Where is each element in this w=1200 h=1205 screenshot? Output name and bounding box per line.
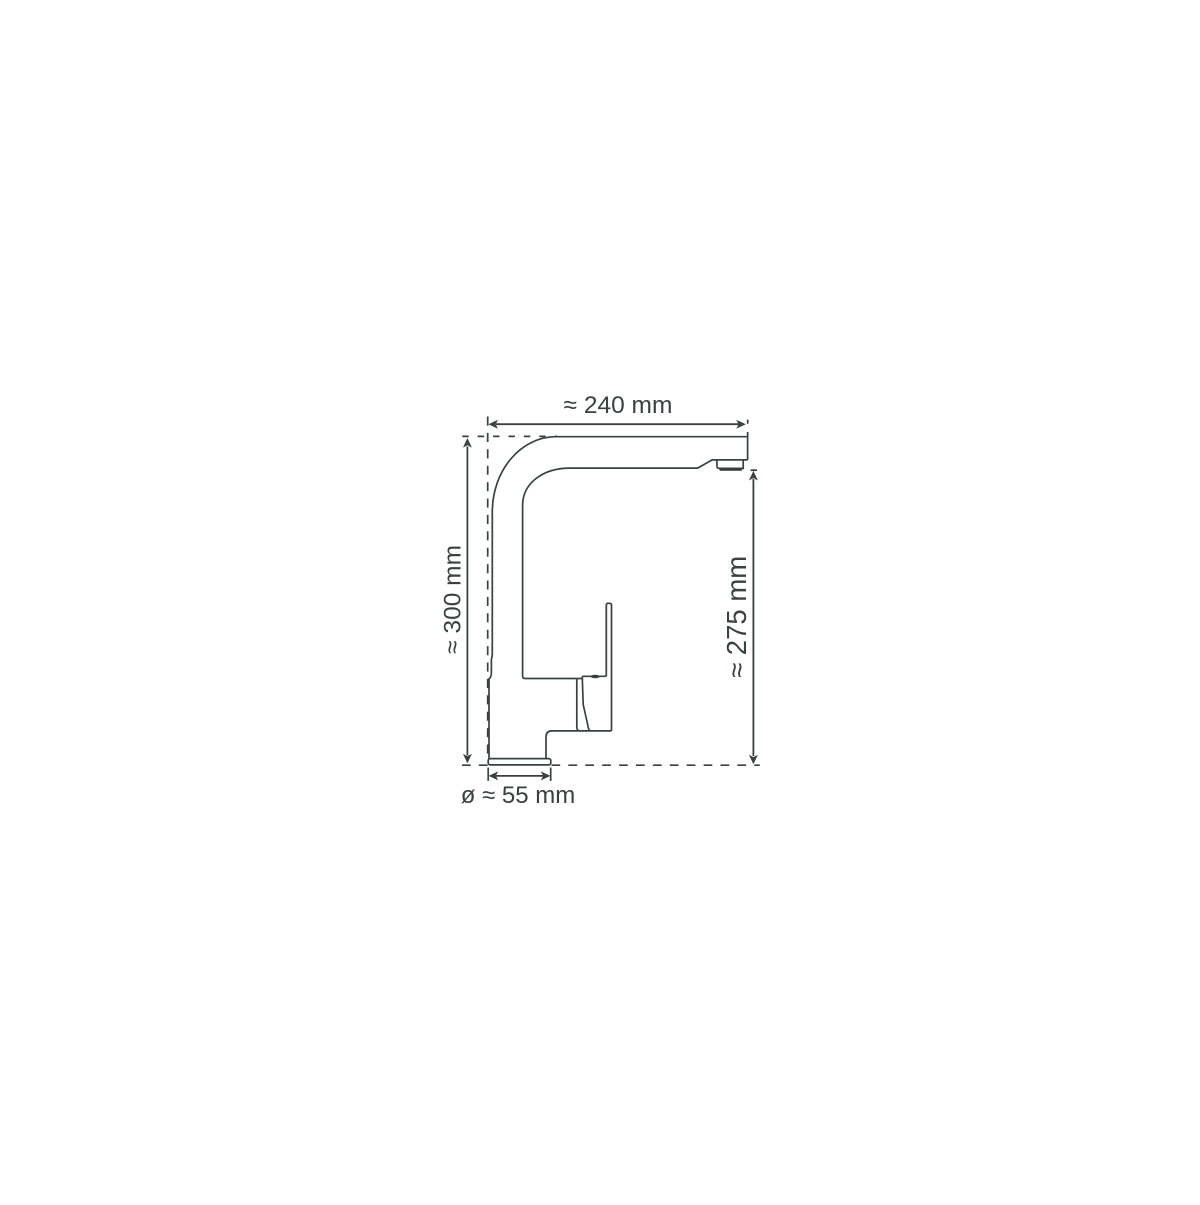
svg-text:ø ≈ 55 mm: ø ≈ 55 mm [461, 782, 576, 809]
svg-text:≈ 240 mm: ≈ 240 mm [564, 392, 673, 419]
svg-text:≈ 275 mm: ≈ 275 mm [721, 556, 752, 678]
svg-text:≈ 300 mm: ≈ 300 mm [440, 545, 467, 654]
